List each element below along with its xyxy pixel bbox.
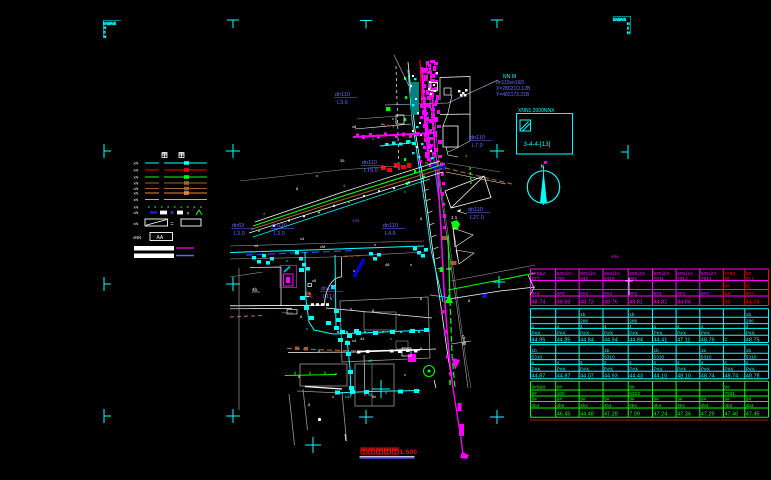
svg-text:9#4: 9#4 [580, 291, 588, 297]
svg-text:P#X: P#X [629, 366, 639, 372]
svg-text:1b: 1b [580, 312, 586, 318]
svg-text:9#: 9# [677, 397, 683, 403]
svg-text:9#4: 9#4 [532, 291, 540, 297]
svg-text:48.74: 48.74 [701, 374, 715, 380]
svg-text:44.84: 44.84 [629, 338, 643, 344]
svg-text:9#: 9# [532, 397, 538, 403]
svg-text:9L1: 9L1 [746, 276, 754, 282]
svg-text:xN: xN [134, 161, 139, 166]
svg-text:P#X: P#X [532, 330, 542, 336]
svg-text:48.79: 48.79 [701, 338, 715, 344]
svg-text:dn63: dn63 [232, 223, 244, 229]
svg-text:7.09: 7.09 [629, 412, 640, 418]
svg-text:&9*: &9* [724, 291, 732, 297]
svg-text:P#X: P#X [557, 366, 567, 372]
svg-text:x: x [316, 173, 318, 178]
svg-text:48.78: 48.78 [746, 374, 760, 380]
svg-text:x: x [318, 348, 320, 353]
svg-text:1b: 1b [654, 348, 660, 354]
svg-text:9#4: 9#4 [629, 291, 637, 297]
svg-text:9#4: 9#4 [604, 291, 612, 297]
svg-text:9#4: 9#4 [557, 291, 565, 297]
svg-text:xN: xN [134, 191, 139, 196]
svg-text:dn110: dn110 [272, 223, 287, 229]
svg-text:P#X: P#X [580, 366, 590, 372]
svg-text:4b.: 4b. [252, 287, 258, 292]
svg-text:xNx: xNx [611, 254, 619, 259]
svg-text:7911: 7911 [654, 276, 665, 282]
svg-text:LT9.0: LT9.0 [364, 168, 378, 174]
svg-text:9#: 9# [580, 397, 586, 403]
svg-text:4b4: 4b4 [532, 403, 540, 408]
svg-text:x: x [353, 268, 355, 273]
svg-text:x: x [330, 296, 332, 301]
svg-text:44.87: 44.87 [557, 374, 571, 380]
svg-text:=: = [171, 222, 174, 228]
svg-text:9#: 9# [746, 397, 752, 403]
svg-text:dn110: dn110 [335, 92, 350, 98]
svg-text:44.07: 44.07 [580, 374, 594, 380]
svg-text:9#4: 9#4 [654, 291, 662, 297]
svg-text:x: x [390, 336, 392, 341]
svg-text:44.43: 44.43 [629, 374, 643, 380]
svg-text:9#: 9# [724, 276, 730, 282]
svg-text:4b4: 4b4 [580, 403, 588, 408]
svg-text:1b: 1b [701, 348, 707, 354]
svg-text:x: x [286, 258, 288, 263]
svg-text:1b: 1b [746, 348, 752, 354]
svg-text:P#X: P#X [532, 366, 542, 372]
svg-text:1b: 1b [629, 312, 635, 318]
svg-text:8x: 8x [372, 394, 376, 399]
svg-text:P#X: P#X [724, 366, 734, 372]
svg-text:9#: 9# [654, 397, 660, 403]
svg-text:47.29: 47.29 [701, 412, 715, 418]
svg-text:44.10: 44.10 [654, 374, 668, 380]
svg-text:P#X: P#X [701, 366, 711, 372]
svg-text:44.84: 44.84 [677, 300, 691, 306]
svg-text:9]: 9] [746, 284, 750, 290]
svg-text:dn110: dn110 [321, 286, 336, 292]
svg-text:4b4: 4b4 [746, 403, 754, 408]
svg-text:44.93: 44.93 [604, 374, 618, 380]
svg-text:N: N [104, 35, 107, 39]
svg-text:44.85: 44.85 [557, 338, 571, 344]
svg-text:5: 5 [104, 31, 106, 35]
svg-text:Y=482173.21B: Y=482173.21B [496, 92, 530, 98]
svg-text:48.81: 48.81 [629, 300, 643, 306]
svg-text:7914: 7914 [701, 276, 712, 282]
svg-text:x: x [340, 326, 342, 331]
svg-text:942: 942 [580, 276, 588, 282]
svg-text:x: x [404, 372, 406, 377]
svg-text:P#X: P#X [677, 330, 687, 336]
svg-text:48.74: 48.74 [724, 374, 738, 380]
svg-text:xN: xN [134, 210, 139, 215]
svg-text:7912: 7912 [677, 276, 688, 282]
svg-text:4b4: 4b4 [724, 403, 732, 408]
svg-text:N: N [627, 22, 630, 26]
svg-text:4b4: 4b4 [654, 403, 662, 408]
svg-text:47.40: 47.40 [724, 412, 738, 418]
svg-text:47B: 47B [352, 218, 359, 223]
svg-text:9#9&9: 9#9&9 [532, 385, 546, 391]
svg-text:P#X: P#X [557, 330, 567, 336]
svg-text:xN: xN [134, 175, 139, 180]
svg-text:x: x [335, 371, 337, 376]
svg-text:47.34: 47.34 [677, 412, 691, 418]
svg-text:P#X: P#X [746, 330, 756, 336]
svg-text:48.93: 48.93 [557, 300, 571, 306]
svg-text:9#: 9# [724, 300, 731, 306]
svg-text:9#: 9# [701, 397, 707, 403]
svg-text:46.45: 46.45 [557, 412, 571, 418]
svg-text:9#: 9# [724, 397, 730, 403]
svg-text:xN: xN [134, 181, 139, 186]
svg-text:xx: xx [320, 206, 324, 211]
svg-text:x: x [404, 189, 406, 194]
svg-text:P#X: P#X [677, 366, 687, 372]
svg-text:9#4: 9#4 [677, 291, 685, 297]
svg-text:P#X: P#X [654, 366, 664, 372]
svg-text:981: 981 [629, 276, 637, 282]
svg-text:P#X: P#X [604, 366, 614, 372]
svg-text:P#X: P#X [654, 330, 664, 336]
svg-text:48.74: 48.74 [532, 300, 546, 306]
svg-text:x: x [410, 262, 412, 267]
svg-text:1b: 1b [532, 348, 538, 354]
svg-text:c: c [306, 326, 308, 331]
svg-text:3-4-4-[13]: 3-4-4-[13] [524, 141, 551, 148]
svg-text:P#X: P#X [629, 330, 639, 336]
svg-text:1b: 1b [746, 312, 752, 318]
svg-text:xN: xN [134, 205, 139, 210]
svg-text:48.73: 48.73 [580, 300, 594, 306]
svg-text:9#: 9# [604, 397, 610, 403]
svg-text:xN: xN [134, 197, 139, 202]
svg-text:P#X: P#X [746, 366, 756, 372]
svg-text:4b4: 4b4 [604, 403, 612, 408]
svg-text:L3.0: L3.0 [274, 231, 285, 237]
svg-text:x: x [374, 242, 376, 247]
svg-text:dn110: dn110 [468, 207, 483, 213]
svg-text:9#4: 9#4 [746, 291, 754, 297]
svg-text:dn110: dn110 [362, 160, 377, 166]
svg-text:9#: 9# [629, 397, 635, 403]
svg-text:9#: 9# [629, 385, 635, 391]
svg-text:5: 5 [627, 27, 629, 31]
svg-text:9#: 9# [557, 397, 563, 403]
svg-text:dn110: dn110 [470, 135, 485, 141]
svg-text:44.94: 44.94 [604, 338, 618, 344]
svg-text:1:500: 1:500 [400, 449, 418, 456]
svg-text:N: N [104, 26, 107, 30]
svg-text:1 1: 1 1 [451, 215, 458, 220]
svg-text:P#X: P#X [701, 330, 711, 336]
svg-text:765: 765 [557, 276, 565, 282]
svg-text:577: 577 [532, 276, 540, 282]
svg-text:44.48: 44.48 [580, 412, 594, 418]
svg-text:47.28: 47.28 [604, 412, 618, 418]
svg-text:48.76: 48.76 [604, 300, 618, 306]
svg-text:9#: 9# [724, 385, 730, 391]
svg-text:N: N [627, 31, 630, 35]
svg-text:=: = [724, 338, 727, 344]
svg-text:4b4: 4b4 [629, 403, 637, 408]
svg-text:44.41: 44.41 [654, 338, 668, 344]
svg-text:44: 44 [360, 336, 365, 341]
svg-text:AA: AA [157, 235, 164, 241]
svg-text:47.45: 47.45 [746, 412, 760, 418]
svg-text:7921: 7921 [724, 391, 735, 397]
svg-text:1b: 1b [604, 348, 610, 354]
svg-text:N: N [541, 165, 545, 171]
svg-text:9#: 9# [557, 385, 563, 391]
svg-text:cM: cM [320, 244, 325, 249]
svg-text:44.82: 44.82 [654, 300, 668, 306]
svg-text:44.95: 44.95 [532, 338, 546, 344]
svg-text:9#4: 9#4 [701, 291, 709, 297]
svg-text:5N5N5: 5N5N5 [613, 17, 627, 22]
svg-text:47.24: 47.24 [654, 412, 668, 418]
svg-text:9#: 9# [532, 391, 538, 397]
svg-text:P#X: P#X [604, 330, 614, 336]
svg-text:L3.0: L3.0 [234, 231, 245, 237]
svg-text:x: x [392, 116, 394, 121]
svg-text:x: x [341, 390, 343, 395]
svg-text:L27.0: L27.0 [470, 215, 484, 221]
svg-text:4b4: 4b4 [677, 403, 685, 408]
svg-text:5323: 5323 [629, 391, 640, 397]
svg-text:x: x [332, 394, 334, 399]
svg-text:100: 100 [557, 391, 565, 397]
svg-text:44.04: 44.04 [746, 300, 760, 306]
svg-text:48.10: 48.10 [677, 374, 691, 380]
svg-text:x: x [350, 306, 352, 311]
svg-text:48.75: 48.75 [746, 338, 760, 344]
svg-text:48: 48 [385, 262, 390, 267]
svg-text:xN: xN [134, 168, 139, 173]
svg-text:9#: 9# [724, 284, 730, 290]
svg-text:x: x [398, 312, 400, 317]
svg-text:L4.5: L4.5 [385, 231, 396, 237]
svg-text:L3.0: L3.0 [337, 100, 348, 106]
svg-text:c4x: c4x [345, 394, 351, 399]
svg-text:dn110: dn110 [383, 223, 398, 229]
svg-text:xN: xN [134, 221, 139, 226]
svg-text:9419: 9419 [604, 276, 615, 282]
svg-text:4b4: 4b4 [701, 403, 709, 408]
svg-text:xNN: xNN [133, 235, 141, 240]
svg-text:4b4: 4b4 [557, 403, 565, 408]
svg-text:L7.0: L7.0 [472, 143, 483, 149]
svg-text:cM: cM [446, 266, 451, 271]
svg-text:35: 35 [340, 158, 345, 163]
svg-text:44.84: 44.84 [580, 338, 594, 344]
svg-text:44.87: 44.87 [532, 374, 546, 380]
svg-text:47.11: 47.11 [677, 338, 690, 344]
svg-text:P#X: P#X [580, 330, 590, 336]
